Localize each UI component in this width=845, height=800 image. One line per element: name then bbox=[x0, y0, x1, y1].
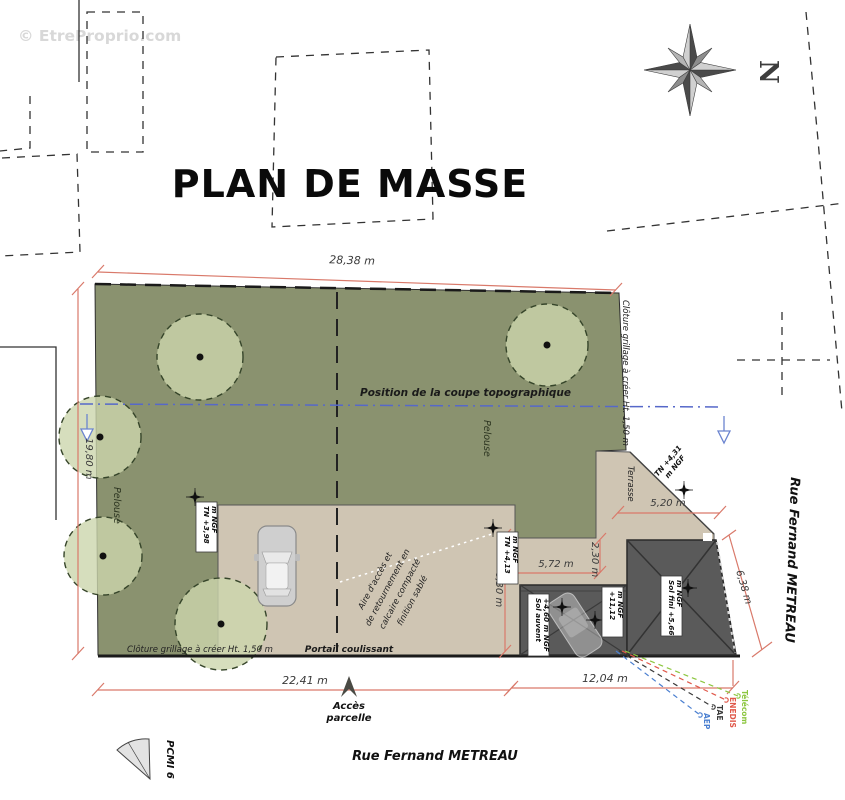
access-label-line2: parcelle bbox=[325, 713, 371, 724]
page-title: PLAN DE MASSE bbox=[172, 162, 528, 206]
dim-band-depth: 2,30 m bbox=[589, 542, 600, 577]
site-plan-drawing: © EtreProprio.com PLAN DE MASSE N bbox=[0, 0, 845, 800]
pcmi-label: PCMI 6 bbox=[164, 740, 175, 779]
tree bbox=[157, 314, 243, 400]
dim-top: 28,38 m bbox=[329, 253, 375, 267]
level-label-tn431: TN +4,31 m NGF bbox=[652, 443, 690, 483]
photo-viewpoint-icon bbox=[117, 739, 150, 779]
utility-label-enedis: ENEDIS bbox=[728, 697, 737, 728]
svg-text:TN +3,98: TN +3,98 bbox=[202, 506, 211, 544]
lawn-label-main: Pelouse bbox=[481, 420, 492, 457]
dim-terrace: 5,20 m bbox=[650, 498, 685, 509]
svg-text:m NGF: m NGF bbox=[210, 506, 219, 533]
svg-text:TN +4,13: TN +4,13 bbox=[503, 536, 512, 574]
sliding-gate-label: Portail coulissant bbox=[305, 645, 394, 655]
svg-text:m NGF: m NGF bbox=[616, 591, 625, 618]
svg-text:m NGF: m NGF bbox=[675, 580, 684, 607]
section-label: Position de la coupe topographique bbox=[360, 387, 571, 399]
dim-bottom-right: 12,04 m bbox=[582, 672, 628, 685]
access-label-line1: Accès bbox=[332, 700, 365, 712]
level-label-sol-fini: Sol fini +5,66 m NGF bbox=[661, 576, 684, 636]
access-arrow-icon bbox=[341, 676, 357, 697]
svg-text:+11,12: +11,12 bbox=[608, 591, 617, 620]
street-name-right: Rue Fernand METREAU bbox=[781, 477, 802, 644]
tree bbox=[506, 304, 588, 386]
driveway-car bbox=[254, 526, 300, 606]
site-plan-page: © EtreProprio.com PLAN DE MASSE N bbox=[0, 0, 845, 800]
level-label-tn413: TN +4,13 m NGF bbox=[497, 532, 520, 584]
svg-text:Sol fini +5,66: Sol fini +5,66 bbox=[667, 580, 676, 635]
dim-right: 6,38 m bbox=[733, 569, 753, 606]
watermark-text: © EtreProprio.com bbox=[18, 27, 181, 45]
utility-label-telecom: Télécom bbox=[740, 690, 749, 724]
compass-rose bbox=[644, 24, 736, 116]
tree bbox=[59, 396, 141, 478]
svg-text:Sol auvent: Sol auvent bbox=[534, 598, 543, 642]
level-label-ridge: +11,12 m NGF bbox=[602, 587, 625, 637]
tree bbox=[64, 517, 142, 595]
fence-label-bottom: Clôture grillage à créer Ht. 1,50 m bbox=[127, 644, 273, 655]
dim-left: 19,80 m bbox=[83, 438, 94, 480]
dim-band: 5,72 m bbox=[538, 559, 573, 570]
fence-label-right: Clôture grillage à créer Ht. 1,50 m bbox=[620, 300, 631, 446]
utility-label-tae: TAE bbox=[715, 705, 724, 720]
building-notch bbox=[703, 533, 712, 541]
utility-label-aep: AEP bbox=[702, 713, 711, 730]
north-letter: N bbox=[753, 60, 783, 84]
svg-text:+4,60 m NGF: +4,60 m NGF bbox=[542, 598, 551, 652]
street-name-bottom: Rue Fernand METREAU bbox=[352, 749, 518, 764]
lawn-label-left: Pelouse bbox=[111, 487, 122, 524]
level-label-sol-auvent: Sol auvent +4,60 m NGF bbox=[528, 594, 551, 656]
terrace-label: Terrasse bbox=[625, 466, 635, 502]
svg-text:m NGF: m NGF bbox=[511, 536, 520, 563]
dim-bottom-left: 22,41 m bbox=[282, 674, 328, 687]
section-arrow-right bbox=[718, 416, 730, 443]
level-label-tn398: TN +3,98 m NGF bbox=[196, 502, 219, 552]
